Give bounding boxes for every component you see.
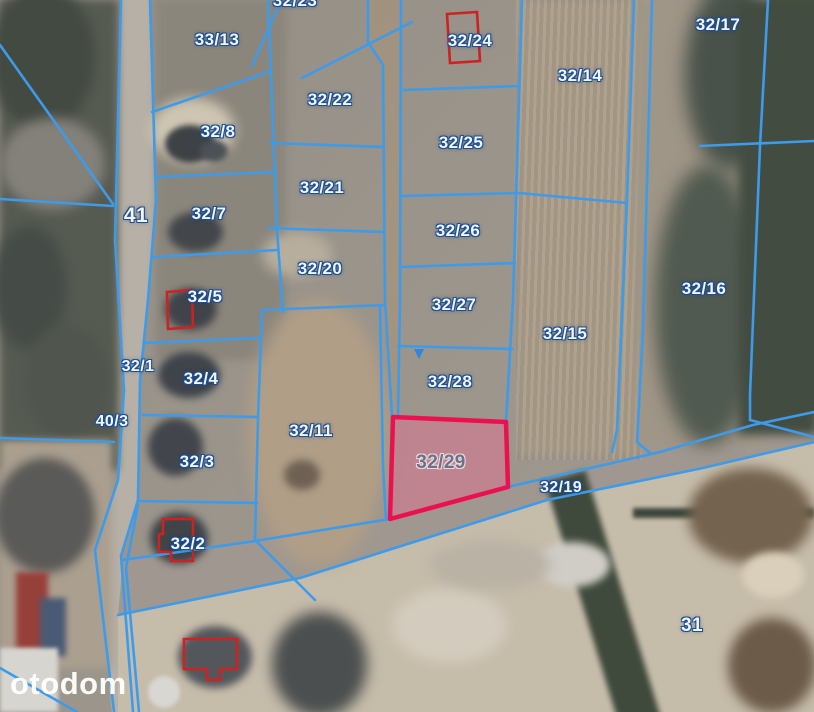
parcel-label-32-24: 32/24 <box>448 31 493 51</box>
parcel-boundary-line <box>121 0 156 712</box>
parcel-boundary-line <box>0 438 114 442</box>
parcel-boundary-line <box>268 0 283 312</box>
droplet-marker-icon <box>414 349 424 359</box>
parcel-boundary-line <box>140 501 257 503</box>
parcel-label-32-5: 32/5 <box>188 287 223 307</box>
parcel-boundary-line <box>398 0 401 417</box>
parcel-boundary-line <box>750 420 814 437</box>
parcel-boundary-line <box>637 0 652 453</box>
parcel-label-32-7: 32/7 <box>192 204 227 224</box>
parcel-label-32-19: 32/19 <box>540 479 582 497</box>
building-outline-red <box>184 639 237 680</box>
parcel-boundary-line <box>404 86 519 90</box>
parcel-boundary-line <box>155 172 276 177</box>
parcel-label-32-23: 32/23 <box>273 0 318 11</box>
otodom-watermark-logo: otodom <box>10 666 127 702</box>
parcel-boundary-line <box>0 199 113 206</box>
parcel-label-32-11: 32/11 <box>289 421 333 441</box>
parcel-boundary-line <box>700 141 814 146</box>
parcel-boundary-line <box>506 0 522 487</box>
parcel-label-32-1: 32/1 <box>122 358 155 376</box>
parcel-boundary-line <box>612 0 634 452</box>
parcel-label-41: 41 <box>124 204 148 228</box>
parcel-label-32-29: 32/29 <box>416 452 466 474</box>
parcel-label-32-15: 32/15 <box>543 324 588 344</box>
parcel-boundary-line <box>255 310 262 540</box>
parcel-label-32-26: 32/26 <box>436 221 481 241</box>
parcel-label-40-3: 40/3 <box>96 413 129 431</box>
parcel-boundary-line <box>750 0 768 420</box>
parcel-label-33-13: 33/13 <box>195 30 240 50</box>
parcel-boundary-line <box>270 143 383 147</box>
parcel-boundary-line <box>380 307 386 520</box>
parcel-boundary-line <box>152 72 268 112</box>
parcel-boundary-line <box>400 263 515 267</box>
parcel-label-32-22: 32/22 <box>308 90 353 110</box>
cadastral-overlay <box>0 0 814 712</box>
parcel-label-32-3: 32/3 <box>180 452 215 472</box>
parcel-label-32-20: 32/20 <box>298 259 343 279</box>
parcel-label-32-16: 32/16 <box>682 279 727 299</box>
parcel-label-32-17: 32/17 <box>696 15 741 35</box>
parcel-label-32-4: 32/4 <box>184 369 219 389</box>
parcel-boundary-line <box>302 22 412 78</box>
satellite-cadastral-map[interactable]: 33/1332/2332/2432/1732/1432/2232/832/253… <box>0 0 814 712</box>
parcel-boundary-line <box>0 45 113 204</box>
parcel-label-32-25: 32/25 <box>439 133 484 153</box>
parcel-label-32-21: 32/21 <box>300 178 345 198</box>
parcel-label-32-2: 32/2 <box>171 534 206 554</box>
parcel-boundary-line <box>153 250 277 257</box>
parcel-label-31: 31 <box>681 615 703 637</box>
parcel-boundary-line <box>262 305 385 310</box>
parcel-boundary-line <box>255 540 315 600</box>
parcel-boundary-line <box>268 228 383 232</box>
parcel-boundary-line <box>402 193 627 203</box>
parcel-boundary-line <box>95 0 124 712</box>
parcel-boundary-line <box>143 415 258 417</box>
parcel-label-32-27: 32/27 <box>432 295 477 315</box>
parcel-boundary-line <box>398 346 512 349</box>
parcel-label-32-8: 32/8 <box>201 122 236 142</box>
parcel-label-32-14: 32/14 <box>558 66 603 86</box>
parcel-boundary-line <box>145 338 258 343</box>
parcel-label-32-28: 32/28 <box>428 372 473 392</box>
